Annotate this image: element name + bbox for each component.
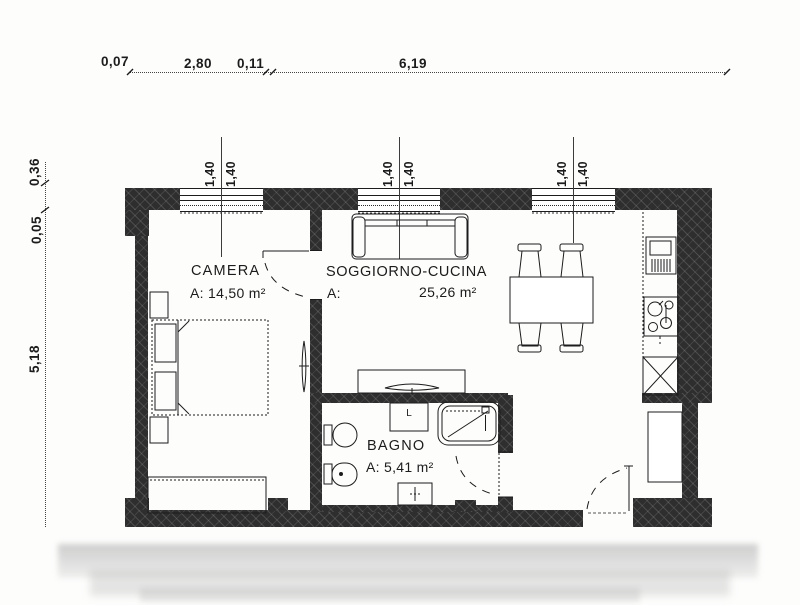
dim-top-2: 0,11 [237, 56, 264, 71]
window-2-dim-left: 1,40 [381, 139, 395, 187]
area-label-bagno: A: 5,41 m² [366, 459, 434, 475]
area-prefix-soggiorno: A: [327, 285, 341, 301]
dim-left-0: 0,36 [27, 150, 42, 186]
wardrobe [148, 477, 266, 513]
pillow [155, 324, 176, 362]
shaft-niche [648, 412, 682, 482]
bed [152, 320, 268, 415]
nightstand [150, 292, 168, 318]
room-label-soggiorno: SOGGIORNO-CUCINA [326, 264, 487, 280]
radiator [299, 341, 309, 392]
entrance-door [587, 466, 633, 513]
area-value-soggiorno: 25,26 m² [419, 284, 477, 300]
dim-left-2: 5,18 [27, 333, 42, 373]
tv-stand [358, 370, 465, 394]
room-label-camera: CAMERA [191, 263, 260, 279]
bathroom-sink [398, 483, 432, 505]
window-2-dim-right: 1,40 [402, 139, 416, 187]
camera-door [263, 251, 309, 297]
window-3-dim-left: 1,40 [555, 139, 569, 187]
bagno-door [456, 452, 513, 497]
window-1-dim-left: 1,40 [203, 139, 217, 187]
dim-left-1: 0,05 [29, 208, 44, 244]
furniture-linework [0, 0, 800, 605]
dim-top-0: 0,07 [101, 54, 129, 69]
floor-plan: 0,07 2,80 0,11 6,19 0,36 0,05 5,18 [0, 0, 800, 605]
kitchen-sink-shaft [643, 357, 678, 395]
room-label-bagno: BAGNO [367, 438, 425, 454]
bidet [324, 463, 357, 486]
dining-table [510, 277, 593, 323]
area-label-camera: A: 14,50 m² [190, 285, 266, 301]
washer-label: L [400, 408, 418, 419]
pillow [155, 372, 176, 410]
nightstand [150, 417, 168, 443]
shower [438, 402, 500, 445]
sofa [352, 214, 468, 259]
cooktop [644, 297, 678, 344]
dim-top-3: 6,19 [399, 56, 427, 71]
window-3-dim-right: 1,40 [576, 139, 590, 187]
window-1-dim-right: 1,40 [224, 139, 238, 187]
dim-top-1: 2,80 [184, 56, 212, 71]
wc-toilet [324, 423, 357, 447]
oven [646, 237, 676, 274]
